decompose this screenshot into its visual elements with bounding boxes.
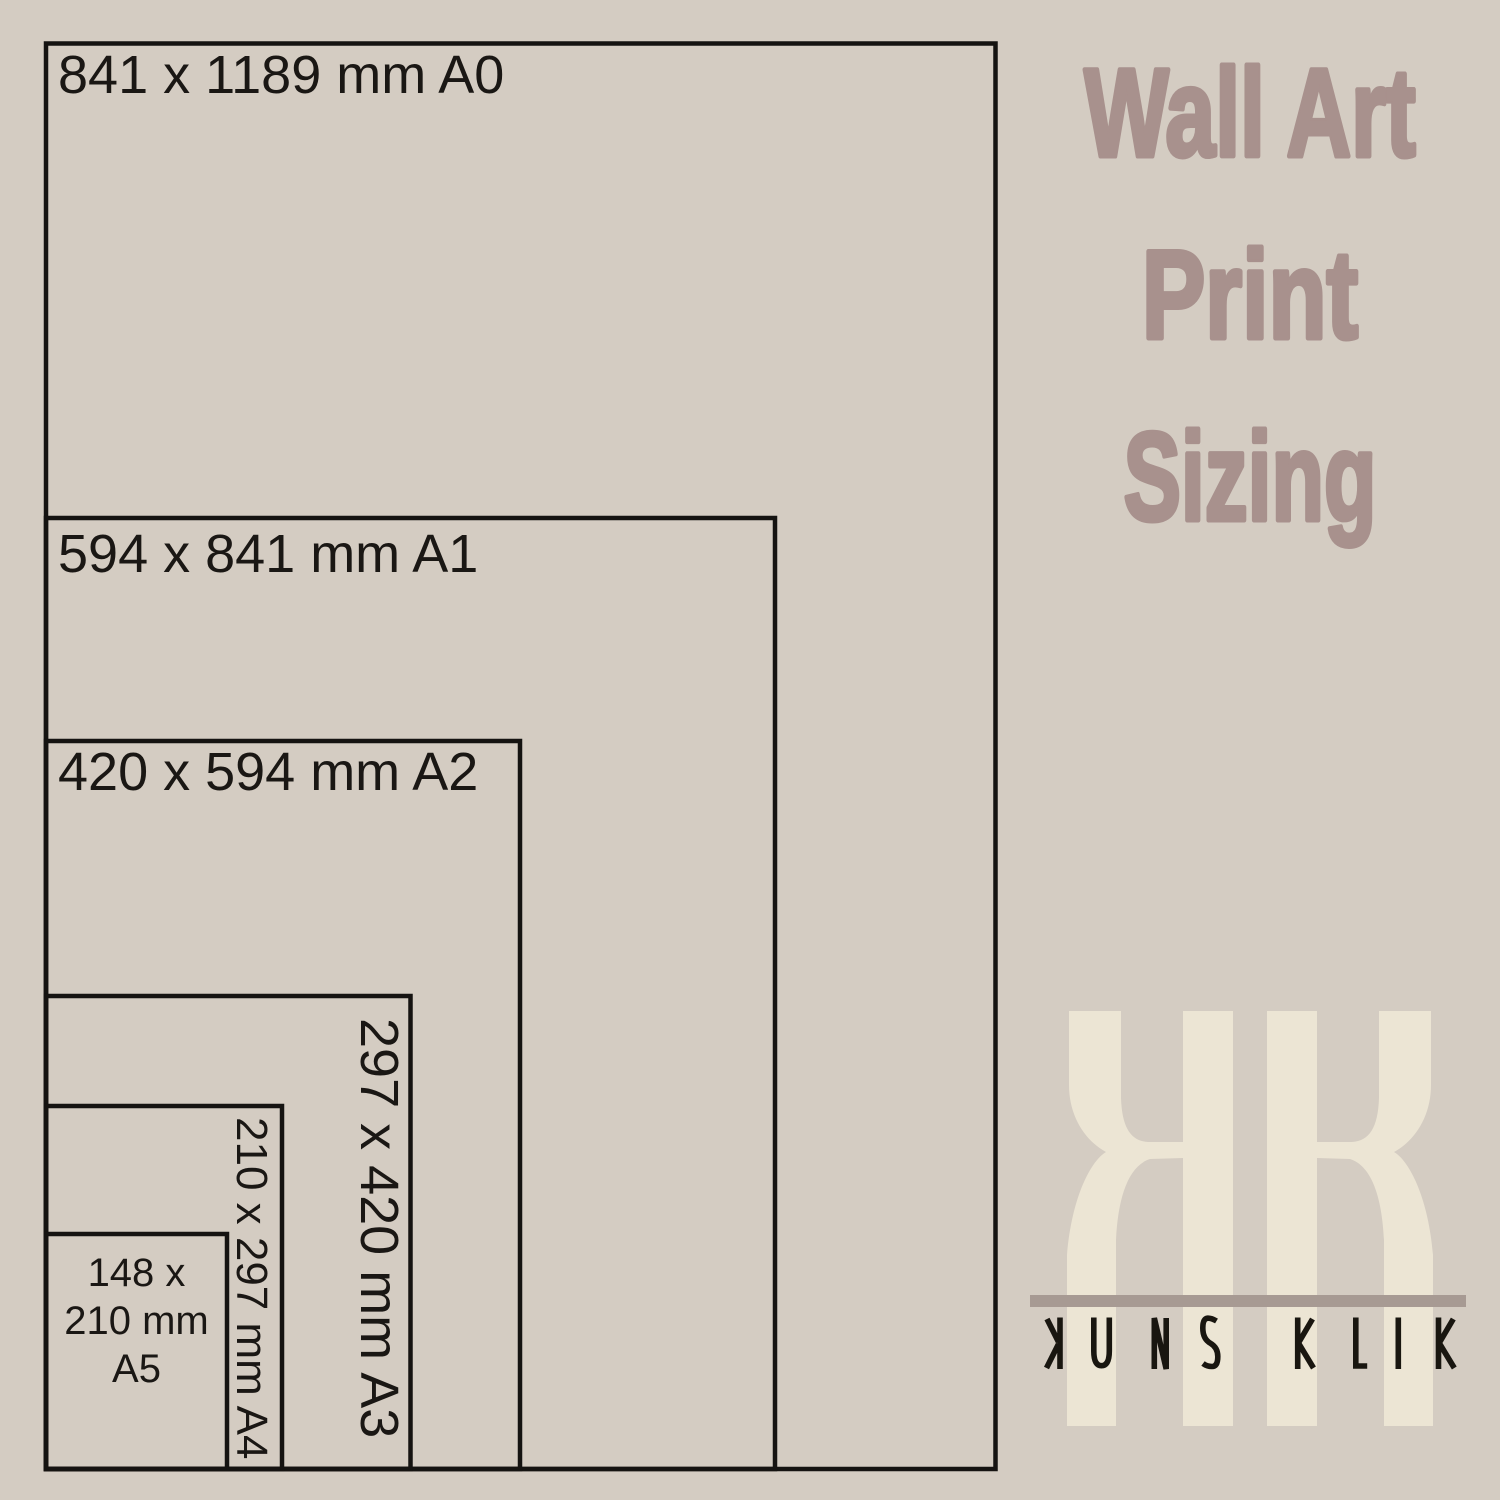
svg-text:210 x 297 mm A4: 210 x 297 mm A4 <box>227 1117 276 1459</box>
svg-text:Sizing: Sizing <box>1124 407 1377 547</box>
svg-text:420 x 594 mm A2: 420 x 594 mm A2 <box>58 742 478 802</box>
svg-text:841 x 1189 mm A0: 841 x 1189 mm A0 <box>58 45 504 105</box>
svg-text:Wall Art: Wall Art <box>1084 44 1415 183</box>
svg-text:210 mm: 210 mm <box>64 1299 209 1343</box>
svg-text:Print: Print <box>1142 225 1358 365</box>
svg-text:148 x: 148 x <box>88 1251 186 1295</box>
svg-text:594 x 841 mm A1: 594 x 841 mm A1 <box>58 524 478 584</box>
svg-text:297 x 420 mm A3: 297 x 420 mm A3 <box>349 1018 409 1438</box>
svg-text:A5: A5 <box>112 1347 161 1391</box>
